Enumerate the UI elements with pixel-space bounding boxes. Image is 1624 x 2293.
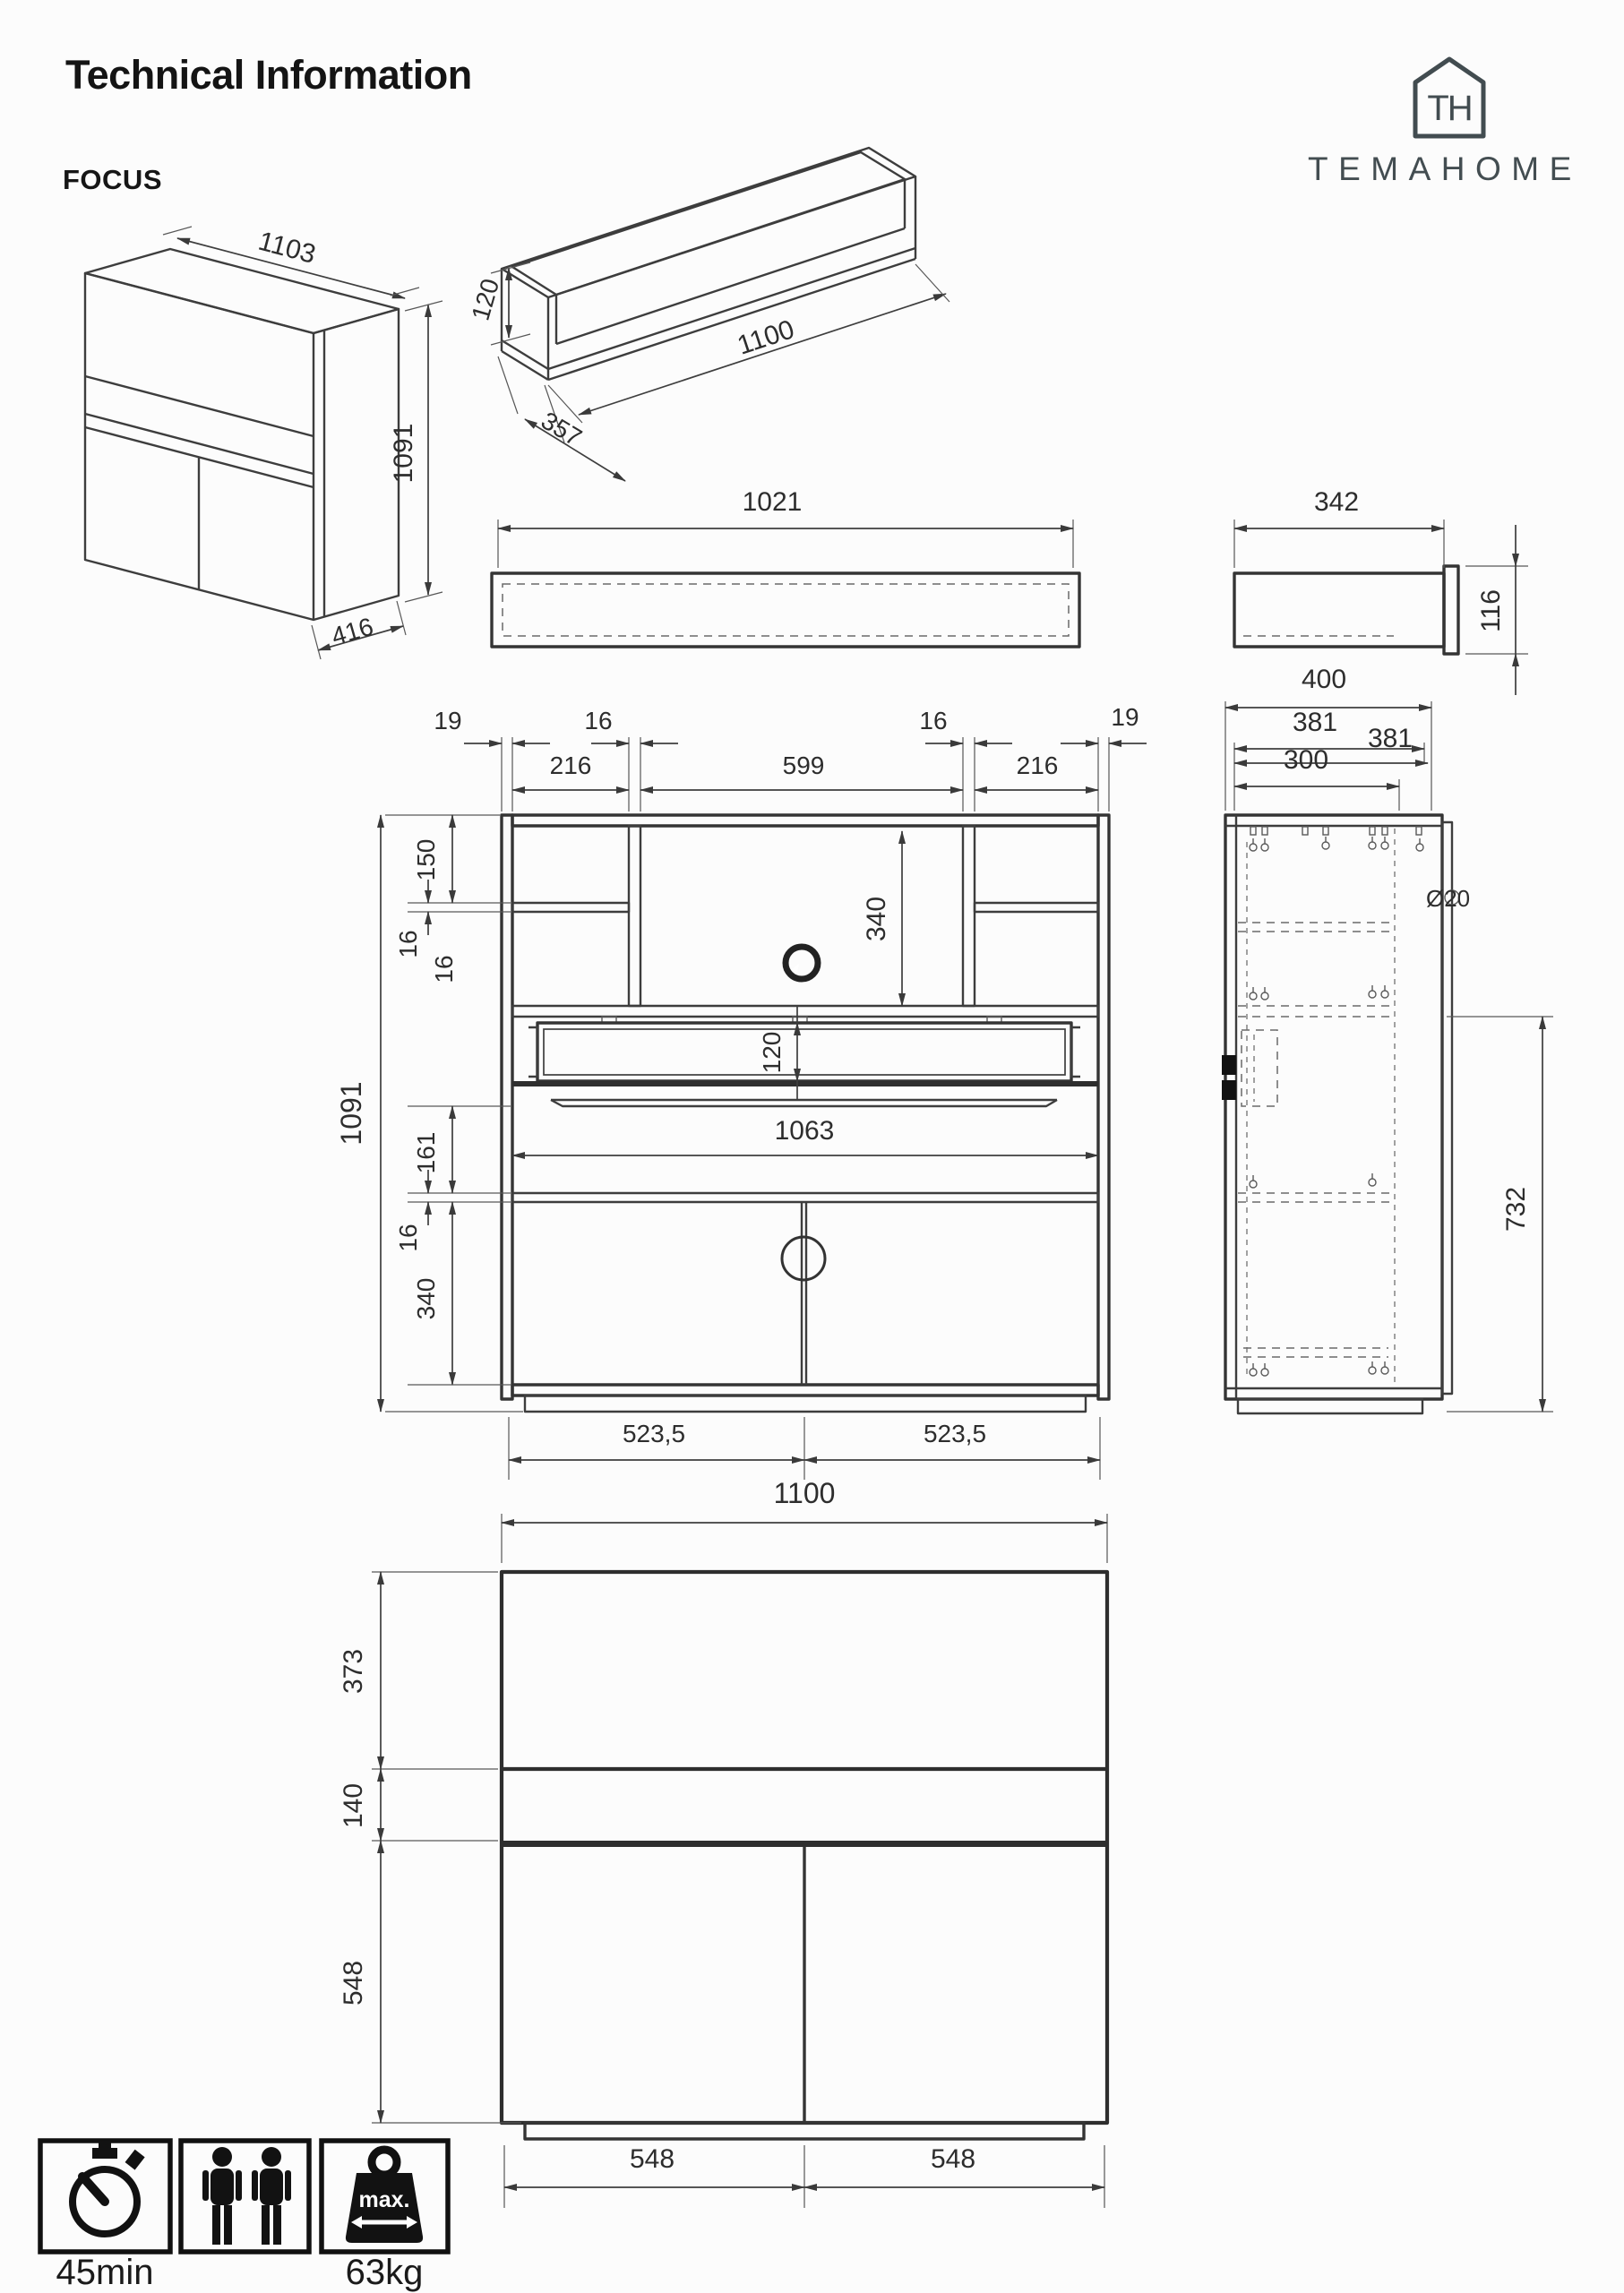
dim-19-right: 19 [1111,703,1139,731]
dim-iso-drawer-height: 120 [467,276,505,323]
front-elevation-simple: 1100 373 140 548 548 548 [339,1477,1107,2208]
dim-400: 400 [1302,665,1346,694]
dim-16-shelf-c: 16 [394,1224,422,1251]
dim-hole-diameter: Ø20 [1426,885,1470,912]
dim-340-top: 340 [862,897,891,941]
dim-523-left: 523,5 [623,1420,685,1447]
iso-cabinet-view: 1103 1091 416 [85,227,443,659]
dim-1063: 1063 [775,1116,835,1146]
technical-drawings: 1103 1091 416 120 1100 357 [0,0,1624,2293]
dim-iso-cabinet-height: 1091 [389,424,418,484]
two-person-icon [202,2147,291,2245]
dim-iso-cabinet-depth: 416 [329,613,376,651]
dim-300: 300 [1284,745,1328,775]
side-section-view: 400 381 381 300 732 Ø20 [1222,665,1553,1413]
dim-shelf-side-width: 342 [1314,487,1359,517]
dim-16-right: 16 [919,707,947,734]
dim-732: 732 [1501,1187,1531,1232]
dim-16-shelf-a: 16 [394,930,422,958]
shelf-front-view: 1021 [492,487,1079,647]
dim-548-height: 548 [339,1961,368,2005]
dim-19-left: 19 [434,707,461,734]
dim-548-left: 548 [630,2144,675,2174]
dim-140: 140 [339,1783,368,1828]
dim-16-shelf-b: 16 [430,955,458,983]
dim-shelf-width: 1021 [743,487,803,517]
dim-1100: 1100 [774,1477,836,1509]
dim-iso-cabinet-width: 1103 [255,227,319,270]
max-label: max. [359,2187,410,2212]
fitting-symbols [1250,827,1423,1376]
dim-381-a: 381 [1293,708,1337,737]
max-weight-label: 63kg [346,2253,424,2292]
dim-120: 120 [758,1032,786,1074]
dim-1091: 1091 [335,1081,367,1145]
dim-599: 599 [783,751,825,779]
weight-icon: max. [346,2150,423,2243]
dim-161: 161 [412,1132,440,1174]
dim-216-right: 216 [1017,751,1059,779]
dim-548-right: 548 [931,2144,975,2174]
dim-150: 150 [412,839,440,881]
dim-iso-drawer-depth: 357 [537,407,587,452]
badge-row: max. 45min 63kg [40,2141,448,2292]
dim-381-b: 381 [1368,724,1413,753]
front-elevation-detailed: 19 16 16 19 216 599 216 1091 150 1 [335,703,1147,1480]
iso-drawer-view: 120 1100 357 [467,148,949,481]
dim-340-doors: 340 [412,1278,440,1320]
technical-sheet-page: Technical Information FOCUS TH TEMAHOME [0,0,1624,2293]
dim-373: 373 [339,1649,368,1694]
shelf-side-view: 342 116 [1234,487,1528,695]
dim-16-left: 16 [584,707,612,734]
dim-523-right: 523,5 [924,1420,986,1447]
dim-216-left: 216 [550,751,592,779]
stopwatch-icon [73,2141,145,2234]
assembly-time-label: 45min [56,2253,154,2292]
dim-shelf-side-height: 116 [1476,589,1506,632]
